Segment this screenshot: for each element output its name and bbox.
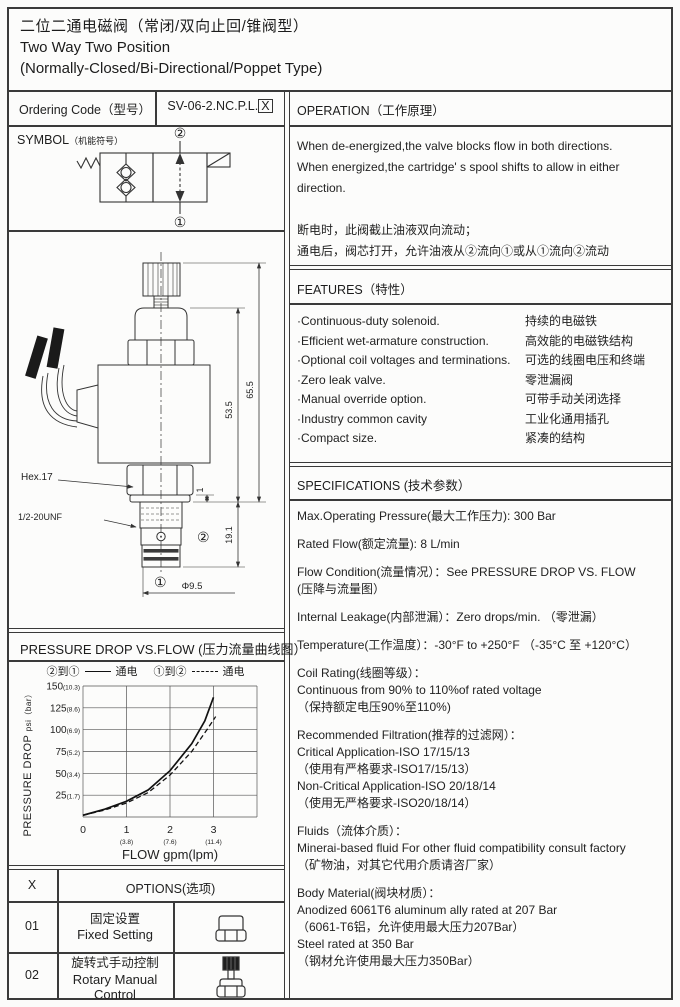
- option-label-en: Fixed Setting: [57, 927, 173, 943]
- manual-knob-drawing: [143, 263, 180, 296]
- chart-series-solid: [83, 697, 214, 815]
- specification-paragraph: Body Material(阀块材质）： Anodized 6061T6 alu…: [297, 885, 671, 970]
- dim-19-1: 19.1: [224, 526, 234, 544]
- y-tick-label: 150(10.3): [46, 682, 80, 693]
- feature-item: ·Efficient wet-armature construction.高效能…: [297, 332, 669, 352]
- title-divider: [7, 90, 673, 92]
- y-tick-label: 100(6.9): [50, 725, 80, 736]
- specification-paragraph: Rated Flow(额定流量): 8 L/min: [297, 536, 671, 553]
- x-tick-label: 1: [124, 824, 130, 836]
- hex17-label: Hex.17: [21, 472, 53, 483]
- x-tick-label: 0: [80, 824, 86, 836]
- dim-65-5: 65.5: [245, 381, 255, 399]
- wire-terminal-icon: [25, 335, 48, 378]
- feature-item: ·Zero leak valve.零泄漏阀: [297, 371, 669, 391]
- hex-nut-drawing: [127, 465, 193, 495]
- ordering-divider: [155, 90, 157, 125]
- feature-text-zh: 工业化通用插孔: [525, 410, 669, 430]
- y-tick-label: 50(3.4): [56, 769, 81, 780]
- drawing-bottom-line: [7, 628, 284, 633]
- feature-text-zh: 可带手动关闭选择: [525, 390, 669, 410]
- specification-paragraph: Recommended Filtration(推荐的过滤网）： Critical…: [297, 727, 671, 812]
- specification-paragraph: Max.Operating Pressure(最大工作压力): 300 Bar: [297, 508, 671, 525]
- title-english-1: Two Way Two Position: [20, 37, 322, 58]
- pressure-drop-chart: FLOW gpm(lpm) 25(1.7)50(3.4)75(5.2)100(6…: [7, 660, 284, 868]
- features-header-underline: [290, 303, 673, 305]
- ordering-code-label: Ordering Code（型号）: [19, 99, 151, 118]
- column-divider: [284, 90, 290, 1000]
- specification-paragraph: Temperature(工作温度）：-30°F to +250°F （-35°C…: [297, 637, 671, 654]
- specifications-list: Max.Operating Pressure(最大工作压力): 300 BarR…: [297, 508, 671, 981]
- options-col-divider-2: [173, 901, 175, 1000]
- specification-paragraph: Internal Leakage(内部泄漏）：Zero drops/min. （…: [297, 609, 671, 626]
- coil-connector-drawing: [77, 385, 98, 428]
- feature-item: ·Continuous-duty solenoid.持续的电磁铁: [297, 312, 669, 332]
- hydraulic-symbol-diagram: ② ①: [7, 125, 284, 230]
- option-row-label: 旋转式手动控制 Rotary Manual Control: [57, 956, 173, 1003]
- symbol-port-2-label: ②: [174, 125, 187, 141]
- feature-text-zh: 高效能的电磁铁结构: [525, 332, 669, 352]
- operation-text: When de-energized,the valve blocks flow …: [297, 136, 667, 262]
- title-chinese: 二位二通电磁阀（常闭/双向止回/锥阀型）: [20, 16, 322, 37]
- feature-item: ·Optional coil voltages and terminations…: [297, 351, 669, 371]
- dim-diameter: Φ9.5: [182, 581, 203, 592]
- specs-top-line: [290, 462, 673, 467]
- x-tick-sublabel: (11.4): [205, 839, 222, 846]
- options-col-x-header: X: [7, 878, 57, 892]
- y-tick-label: 75(5.2): [56, 747, 81, 758]
- y-tick-label: 25(1.7): [56, 791, 81, 802]
- drawing-port-1-label: ①: [154, 574, 167, 590]
- specification-paragraph: Fluids（流体介质）： Minerai-based fluid For ot…: [297, 823, 671, 874]
- feature-text-en: ·Compact size.: [297, 429, 525, 449]
- feature-text-zh: 零泄漏阀: [525, 371, 669, 391]
- feature-item: ·Compact size.紧凑的结构: [297, 429, 669, 449]
- x-tick-label: 2: [167, 824, 173, 836]
- options-col-header: OPTIONS(选项): [57, 878, 284, 897]
- feature-text-zh: 紧凑的结构: [525, 429, 669, 449]
- valve-technical-drawing: Hex.17 1/2-20UNF ② ① 65.5 53.5 19.1 1 Φ9…: [7, 230, 284, 628]
- wire-terminal-icon: [47, 327, 65, 368]
- feature-text-en: ·Zero leak valve.: [297, 371, 525, 391]
- feature-text-en: ·Continuous-duty solenoid.: [297, 312, 525, 332]
- option-label-zh: 旋转式手动控制: [57, 956, 173, 972]
- features-header: FEATURES（特性）: [297, 279, 413, 298]
- x-tick-sublabel: (7.6): [163, 839, 176, 846]
- symbol-port-1-label: ①: [174, 214, 187, 230]
- dim-1: 1: [195, 487, 205, 492]
- solenoid-coil-drawing: [98, 365, 210, 463]
- chart-series-dashed: [83, 717, 216, 816]
- ordering-code-x-box: X: [258, 99, 272, 113]
- option-label-en: Rotary Manual Control: [57, 972, 173, 1003]
- x-tick-sublabel: (3.8): [120, 839, 133, 846]
- dim-53-5: 53.5: [224, 401, 234, 419]
- x-tick-label: 3: [211, 824, 217, 836]
- ordering-code-text: SV-06-2.NC.P.L.: [167, 99, 258, 113]
- chart-x-axis-label: FLOW gpm(lpm): [122, 847, 218, 862]
- feature-item: ·Industry common cavity工业化通用插孔: [297, 410, 669, 430]
- specification-paragraph: Flow Condition(流量情况）：See PRESSURE DROP V…: [297, 564, 671, 598]
- options-header-line: [7, 901, 284, 903]
- drawing-port-2-label: ②: [197, 529, 210, 545]
- spring-symbol-icon: [77, 158, 100, 168]
- features-top-line: [290, 265, 673, 270]
- specifications-header: SPECIFICATIONS (技术参数）: [297, 475, 470, 494]
- ordering-code-value: SV-06-2.NC.P.L.X: [163, 99, 277, 113]
- feature-item: ·Manual override option.可带手动关闭选择: [297, 390, 669, 410]
- feature-text-zh: 持续的电磁铁: [525, 312, 669, 332]
- option-label-zh: 固定设置: [57, 911, 173, 927]
- option-row-label: 固定设置 Fixed Setting: [57, 911, 173, 943]
- title-english-2: (Normally-Closed/Bi-Directional/Poppet T…: [20, 58, 322, 79]
- features-list: ·Continuous-duty solenoid.持续的电磁铁·Efficie…: [297, 312, 669, 449]
- datasheet-page: 二位二通电磁阀（常闭/双向止回/锥阀型） Two Way Two Positio…: [0, 0, 680, 1007]
- y-tick-label: 125(8.6): [50, 703, 80, 714]
- chart-header: PRESSURE DROP VS.FLOW (压力流量曲线图）: [20, 639, 307, 658]
- option-row-code: 01: [7, 919, 57, 933]
- feature-text-en: ·Industry common cavity: [297, 410, 525, 430]
- operation-header: OPERATION（工作原理）: [297, 100, 445, 119]
- option-row-code: 02: [7, 968, 57, 982]
- fixed-setting-icon: [209, 910, 253, 946]
- feature-text-en: ·Manual override option.: [297, 390, 525, 410]
- rotary-manual-control-icon: [209, 954, 253, 1000]
- thread-label: 1/2-20UNF: [18, 512, 63, 522]
- specs-header-underline: [290, 499, 673, 501]
- feature-text-zh: 可选的线圈电压和终端: [525, 351, 669, 371]
- title-block: 二位二通电磁阀（常闭/双向止回/锥阀型） Two Way Two Positio…: [20, 16, 322, 79]
- feature-text-en: ·Optional coil voltages and terminations…: [297, 351, 525, 371]
- specification-paragraph: Coil Rating(线圈等级）： Continuous from 90% t…: [297, 665, 671, 716]
- operation-header-underline: [290, 125, 673, 127]
- feature-text-en: ·Efficient wet-armature construction.: [297, 332, 525, 352]
